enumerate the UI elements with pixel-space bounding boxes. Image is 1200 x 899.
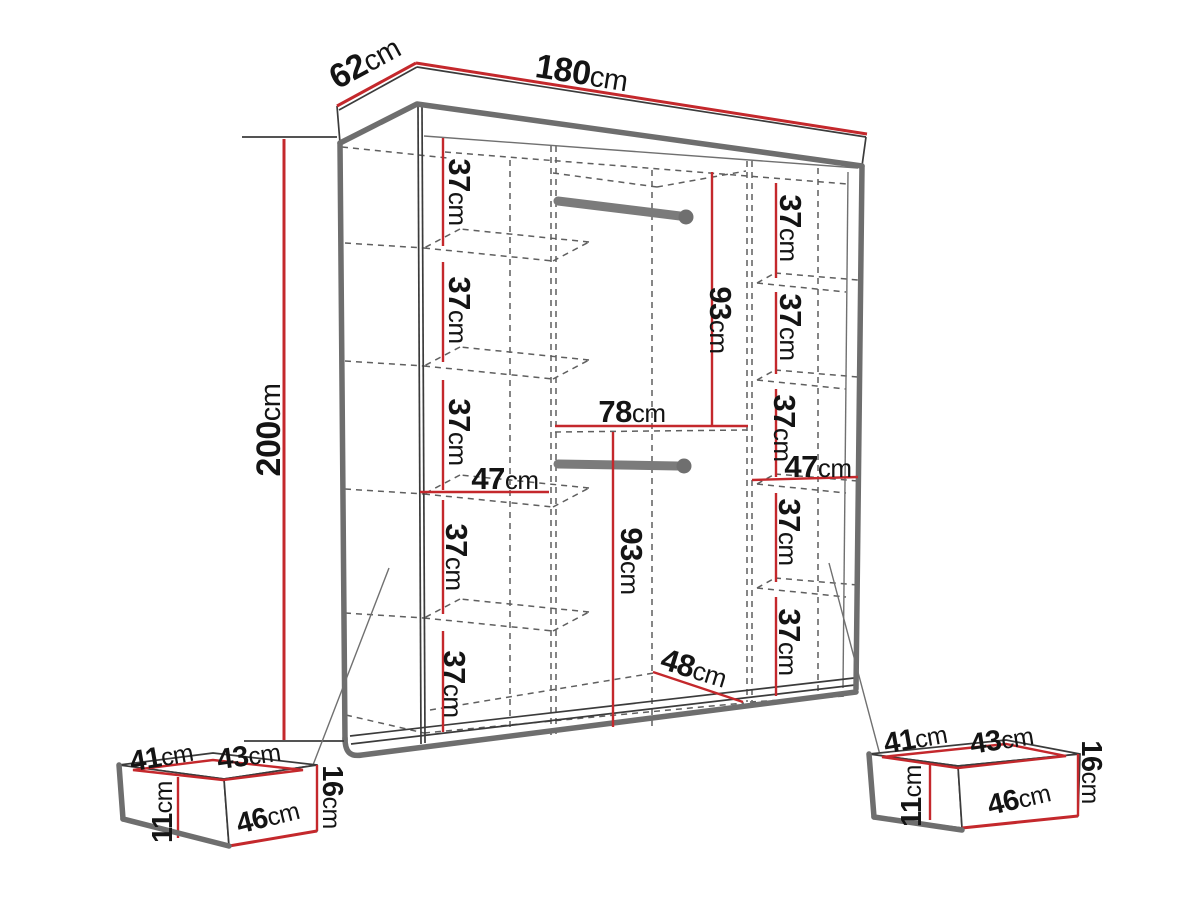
drawer-inner-height-label: 11cm	[147, 781, 179, 843]
shelf-gap-label: 37cm	[442, 398, 477, 465]
shelf-gap-label: 37cm	[437, 650, 472, 717]
upper-hanging-height-label: 93cm	[703, 286, 738, 353]
shelf-gap-label: 37cm	[772, 608, 807, 675]
wardrobe-dimension-diagram: 62cm 180cm 200cm 37cm 37cm 37cm 37cm 37c…	[0, 0, 1200, 899]
shelf-gap-label: 37cm	[773, 194, 808, 261]
dimension-line-width	[416, 63, 867, 134]
dimension-lines-left-column	[420, 138, 549, 732]
right-column-width-label: 47cm	[784, 449, 851, 484]
drawer-height-label: 16cm	[316, 765, 348, 829]
shelf-gap-label: 37cm	[439, 523, 474, 590]
left-column-width-label: 47cm	[471, 461, 538, 496]
shelf-gap-label: 37cm	[772, 498, 807, 565]
hanging-rod-upper	[558, 201, 694, 225]
depth-label: 62cm	[323, 28, 407, 97]
drawer-height-label: 16cm	[1075, 740, 1107, 804]
drawer-inner-height-label: 11cm	[896, 765, 928, 827]
diagram-canvas: 62cm 180cm 200cm 37cm 37cm 37cm 37cm 37c…	[0, 0, 1200, 899]
height-label: 200cm	[250, 384, 288, 477]
lower-hanging-height-label: 93cm	[614, 527, 649, 594]
shelf-gap-label: 37cm	[442, 158, 477, 225]
width-label: 180cm	[533, 47, 631, 99]
shelf-gap-label: 37cm	[442, 276, 477, 343]
shelf-gap-label: 37cm	[773, 293, 808, 360]
center-width-label: 78cm	[598, 394, 665, 429]
hanging-rod-lower	[558, 459, 692, 474]
